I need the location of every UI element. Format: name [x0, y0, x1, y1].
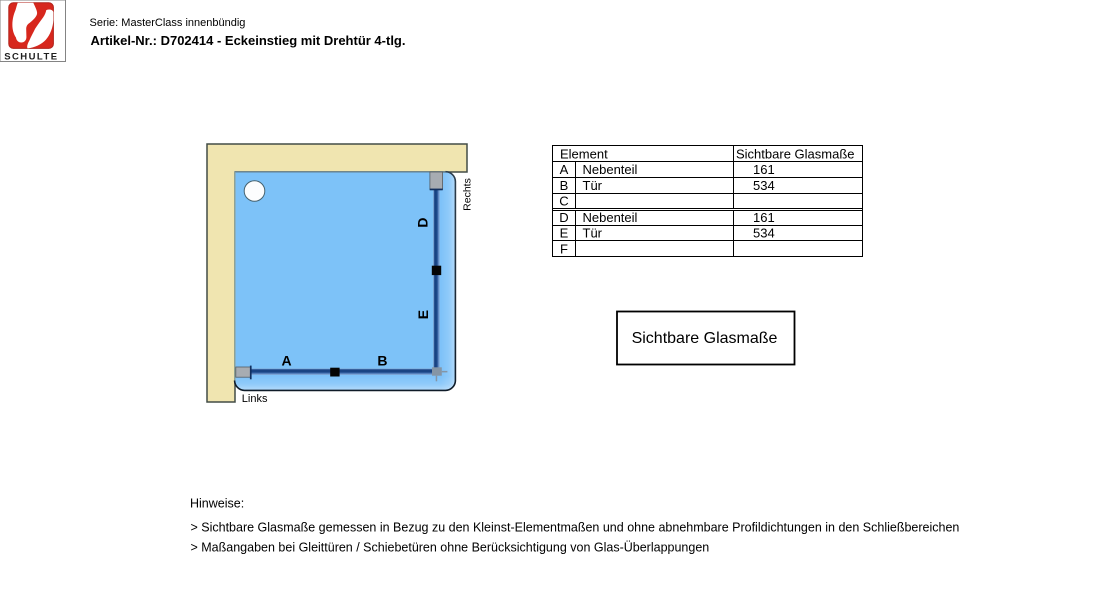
svg-text:D: D [559, 210, 568, 225]
svg-text:534: 534 [753, 178, 775, 193]
svg-text:Serie: MasterClass innenbündig: Serie: MasterClass innenbündig [90, 17, 246, 29]
svg-text:D: D [415, 218, 431, 228]
svg-text:B: B [560, 178, 569, 193]
svg-text:Links: Links [242, 393, 268, 405]
svg-text:Element: Element [560, 146, 608, 161]
svg-text:Hinweise:: Hinweise: [190, 496, 244, 510]
svg-text:F: F [560, 241, 568, 256]
svg-text:Nebenteil: Nebenteil [583, 210, 638, 225]
svg-text:A: A [282, 353, 292, 369]
svg-text:534: 534 [753, 225, 775, 240]
svg-text:161: 161 [753, 210, 775, 225]
svg-text:E: E [415, 310, 431, 319]
svg-text:Tür: Tür [583, 225, 603, 240]
svg-text:Sichtbare Glasmaße: Sichtbare Glasmaße [736, 146, 855, 161]
svg-text:> Maßangaben bei Gleittüren /: > Maßangaben bei Gleittüren / Schiebetür… [191, 541, 710, 555]
svg-text:> Sichtbare Glasmaße gemessen: > Sichtbare Glasmaße gemessen in Bezug z… [191, 520, 960, 534]
svg-text:Nebenteil: Nebenteil [583, 162, 638, 177]
svg-text:Tür: Tür [583, 178, 603, 193]
svg-text:Rechts: Rechts [462, 178, 474, 211]
svg-text:Sichtbare Glasmaße: Sichtbare Glasmaße [632, 330, 778, 347]
svg-text:A: A [560, 162, 569, 177]
svg-text:161: 161 [753, 162, 775, 177]
svg-text:B: B [377, 353, 387, 369]
svg-text:SCHULTE: SCHULTE [4, 52, 58, 63]
svg-text:E: E [560, 225, 569, 240]
svg-text:Artikel-Nr.: D702414 - Eckeins: Artikel-Nr.: D702414 - Eckeinstieg mit D… [91, 33, 406, 48]
svg-text:C: C [559, 194, 568, 209]
